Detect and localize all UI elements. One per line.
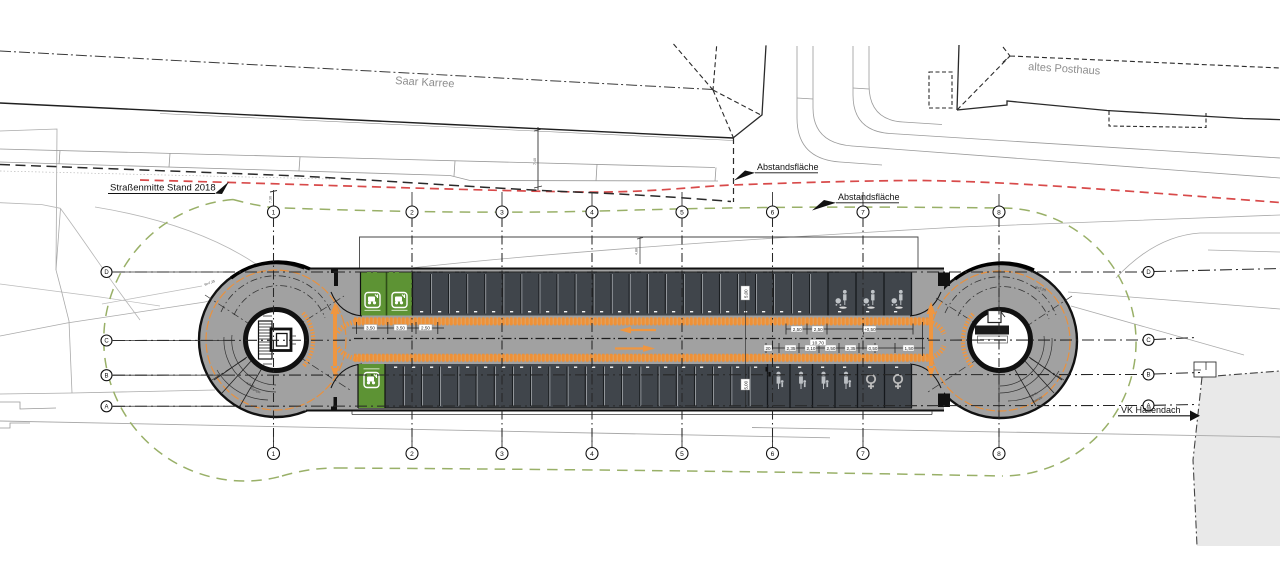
svg-text:4: 4 bbox=[590, 451, 594, 458]
svg-text:1: 1 bbox=[272, 451, 276, 458]
svg-text:4: 4 bbox=[590, 209, 594, 216]
svg-text:Abstandsfläche: Abstandsfläche bbox=[757, 162, 819, 172]
svg-text:+0,50: +0,50 bbox=[864, 327, 876, 332]
svg-text:2,50: 2,50 bbox=[814, 327, 823, 332]
svg-text:0,50: 0,50 bbox=[869, 346, 878, 351]
svg-text:5,00: 5,00 bbox=[744, 380, 749, 389]
svg-text:Saar Karree: Saar Karree bbox=[395, 75, 455, 90]
svg-text:C: C bbox=[104, 339, 109, 345]
svg-text:B: B bbox=[104, 373, 108, 379]
svg-text:3: 3 bbox=[500, 451, 504, 458]
svg-text:3,50: 3,50 bbox=[396, 325, 405, 330]
svg-text:D: D bbox=[1146, 270, 1151, 276]
svg-text:2,50: 2,50 bbox=[827, 346, 836, 351]
svg-text:D: D bbox=[104, 270, 109, 276]
svg-text:20: 20 bbox=[766, 346, 772, 351]
svg-text:3,50: 3,50 bbox=[366, 325, 375, 330]
svg-text:Abstandsfläche: Abstandsfläche bbox=[838, 192, 900, 202]
svg-text:1: 1 bbox=[272, 209, 276, 216]
svg-text:3: 3 bbox=[500, 209, 504, 216]
svg-text:2,50: 2,50 bbox=[421, 325, 430, 330]
svg-text:7,36: 7,36 bbox=[269, 196, 273, 203]
svg-text:C: C bbox=[1146, 338, 1151, 344]
svg-text:VK Hallendach: VK Hallendach bbox=[1121, 405, 1181, 415]
svg-text:7,40: 7,40 bbox=[533, 158, 537, 165]
svg-text:1,50: 1,50 bbox=[905, 346, 914, 351]
svg-text:8: 8 bbox=[997, 209, 1001, 216]
svg-text:2,50: 2,50 bbox=[793, 327, 802, 332]
svg-text:2,35: 2,35 bbox=[787, 346, 796, 351]
svg-text:5: 5 bbox=[680, 209, 684, 216]
svg-text:Straßenmitte Stand 2018: Straßenmitte Stand 2018 bbox=[110, 183, 216, 194]
svg-text:5,00: 5,00 bbox=[744, 289, 749, 298]
svg-text:B: B bbox=[1146, 373, 1150, 379]
svg-text:2,10: 2,10 bbox=[807, 346, 816, 351]
svg-text:2: 2 bbox=[410, 451, 414, 458]
svg-text:7: 7 bbox=[861, 451, 865, 458]
svg-text:10,70: 10,70 bbox=[812, 340, 824, 346]
svg-text:4,88: 4,88 bbox=[635, 248, 639, 255]
svg-text:6: 6 bbox=[771, 209, 775, 216]
svg-text:8: 8 bbox=[997, 451, 1001, 458]
svg-text:6: 6 bbox=[771, 451, 775, 458]
svg-text:5: 5 bbox=[680, 451, 684, 458]
svg-text:2,35: 2,35 bbox=[847, 346, 856, 351]
svg-text:2: 2 bbox=[410, 209, 414, 216]
svg-text:R=7,25: R=7,25 bbox=[204, 279, 216, 287]
svg-text:7: 7 bbox=[861, 209, 865, 216]
svg-text:A: A bbox=[104, 405, 108, 411]
svg-text:altes Posthaus: altes Posthaus bbox=[1028, 61, 1101, 77]
